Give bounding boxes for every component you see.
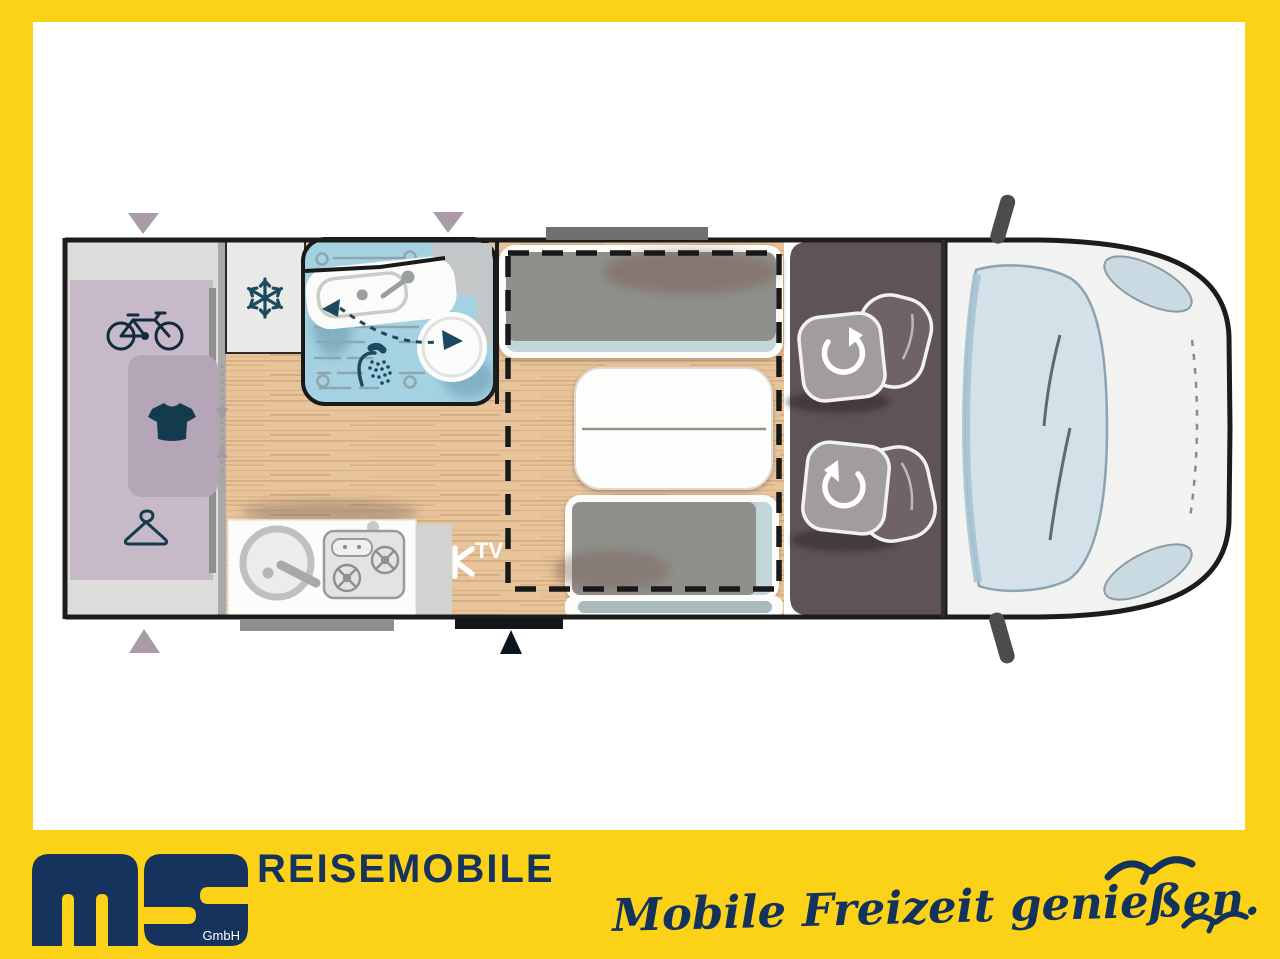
motorhome-floorplan: TV: [0, 0, 1280, 959]
cab-floor: [790, 242, 943, 615]
kitchen-side-panel: [416, 524, 452, 616]
tv-label: TV: [475, 538, 503, 563]
company-name: REISEMOBILE: [257, 847, 555, 892]
logo-letter-m: [32, 854, 138, 946]
garage-door-marker-bottom: [129, 629, 160, 653]
sink-drain: [263, 568, 274, 579]
windshield: [965, 265, 1107, 590]
stove: [324, 521, 404, 598]
rear-garage: [67, 242, 222, 615]
vehicle-front: [945, 193, 1230, 665]
seagull-icon: [1181, 906, 1249, 936]
fridge: [226, 240, 305, 353]
entry-step: [455, 618, 563, 629]
cab: [786, 242, 943, 615]
roof-marker: [546, 227, 708, 240]
bench-front: [499, 245, 783, 358]
dinette-table: [575, 368, 772, 489]
flyer-canvas: TV: [0, 0, 1280, 959]
bathroom: [303, 239, 495, 404]
kitchen-step: [240, 619, 394, 631]
bench-rear: [554, 495, 779, 601]
side-mirror: [989, 193, 1017, 245]
swivel-seat: [791, 440, 941, 552]
entry-door-marker: [500, 630, 522, 654]
garage-door-marker-top: [128, 213, 159, 234]
faucet-base: [402, 271, 415, 284]
toilet: [417, 312, 487, 382]
seagull-icon: [1104, 851, 1196, 889]
ms-gmbh-logo: GmbH: [32, 854, 248, 946]
window-marker-top: [433, 212, 464, 233]
garage-wall: [218, 240, 226, 617]
logo-gmbh-text: GmbH: [202, 928, 240, 943]
